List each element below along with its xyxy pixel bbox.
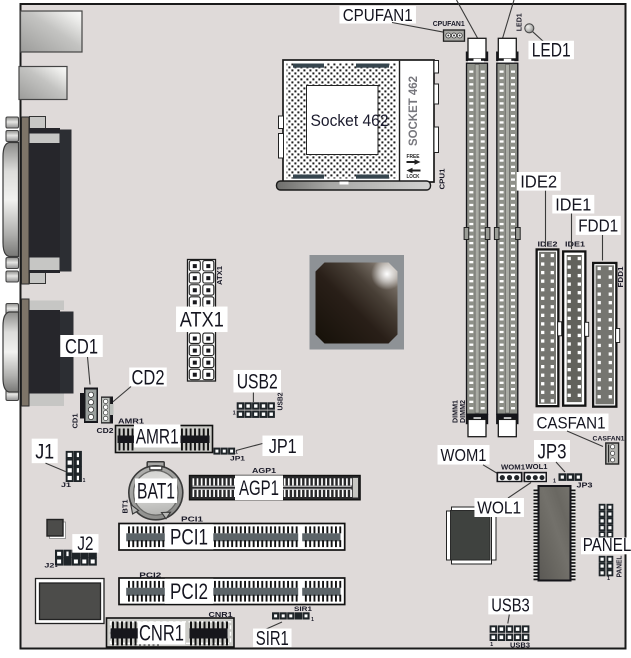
- svg-text:CD1: CD1: [73, 413, 80, 428]
- svg-text:BT1: BT1: [123, 499, 130, 513]
- svg-text:USB2: USB2: [278, 392, 285, 410]
- svg-text:LED1: LED1: [514, 13, 523, 31]
- svg-text:AGP1: AGP1: [252, 466, 276, 475]
- svg-text:BAT1: BAT1: [137, 478, 175, 503]
- svg-text:PCI1: PCI1: [181, 514, 203, 523]
- svg-text:CD2: CD2: [132, 366, 165, 389]
- svg-text:IDE1: IDE1: [565, 242, 585, 249]
- svg-text:CPU1: CPU1: [438, 169, 447, 190]
- svg-text:1: 1: [490, 642, 493, 648]
- svg-text:PCI2: PCI2: [139, 571, 161, 580]
- svg-text:PCI1: PCI1: [170, 525, 208, 550]
- svg-text:JP1: JP1: [230, 456, 245, 463]
- svg-text:IDE2: IDE2: [538, 242, 558, 249]
- svg-text:IDE1: IDE1: [555, 194, 591, 214]
- svg-text:CD2: CD2: [97, 426, 114, 435]
- svg-text:PANEL: PANEL: [617, 555, 624, 578]
- svg-text:1: 1: [607, 576, 610, 582]
- svg-text:WOL1: WOL1: [477, 498, 521, 518]
- svg-text:LOCK: LOCK: [407, 174, 420, 180]
- svg-text:JP3: JP3: [577, 483, 593, 490]
- svg-text:CD1: CD1: [65, 335, 98, 358]
- svg-text:ATX1: ATX1: [180, 309, 224, 332]
- svg-text:CPUFAN1: CPUFAN1: [343, 5, 413, 25]
- svg-text:CASFAN1: CASFAN1: [593, 436, 625, 443]
- svg-text:LED1: LED1: [532, 41, 571, 62]
- svg-text:DIMM2: DIMM2: [460, 400, 467, 423]
- svg-text:AMR1: AMR1: [136, 425, 179, 448]
- svg-text:DIMM1: DIMM1: [453, 400, 460, 423]
- svg-text:1: 1: [553, 479, 556, 485]
- svg-text:AGP1: AGP1: [239, 477, 279, 500]
- svg-text:PCI2: PCI2: [170, 579, 208, 604]
- svg-text:USB3: USB3: [510, 641, 530, 650]
- svg-text:WOL1: WOL1: [526, 464, 548, 471]
- svg-text:SIR1: SIR1: [256, 628, 289, 650]
- svg-text:SIR1: SIR1: [294, 606, 312, 613]
- svg-text:IDE2: IDE2: [520, 171, 557, 191]
- svg-text:CASFAN1: CASFAN1: [537, 413, 606, 432]
- svg-text:J1: J1: [61, 482, 71, 489]
- svg-text:JP3: JP3: [538, 440, 567, 463]
- svg-text:USB3: USB3: [491, 595, 530, 616]
- svg-text:J1: J1: [35, 439, 54, 463]
- svg-text:J2: J2: [77, 533, 93, 555]
- svg-text:CPUFAN1: CPUFAN1: [433, 19, 465, 28]
- svg-text:1: 1: [55, 563, 58, 569]
- svg-text:WOM1: WOM1: [441, 445, 487, 465]
- svg-text:WOM1: WOM1: [501, 465, 525, 472]
- svg-text:SOCKET 462: SOCKET 462: [408, 76, 420, 146]
- svg-text:CNR1: CNR1: [209, 610, 233, 619]
- svg-text:1: 1: [311, 617, 314, 623]
- svg-text:1: 1: [83, 478, 86, 484]
- svg-text:USB2: USB2: [237, 371, 278, 394]
- svg-text:AMR1: AMR1: [118, 417, 144, 426]
- svg-text:JP1: JP1: [269, 435, 297, 458]
- svg-text:CNR1: CNR1: [139, 621, 184, 646]
- svg-text:1: 1: [233, 411, 236, 417]
- svg-text:FREE: FREE: [407, 154, 421, 160]
- svg-text:PANEL1: PANEL1: [583, 534, 631, 555]
- svg-text:FDD1: FDD1: [618, 266, 625, 287]
- svg-text:J2: J2: [44, 563, 54, 570]
- svg-text:Socket 462: Socket 462: [311, 111, 389, 130]
- svg-text:ATX1: ATX1: [215, 266, 224, 285]
- svg-text:FDD1: FDD1: [578, 216, 618, 236]
